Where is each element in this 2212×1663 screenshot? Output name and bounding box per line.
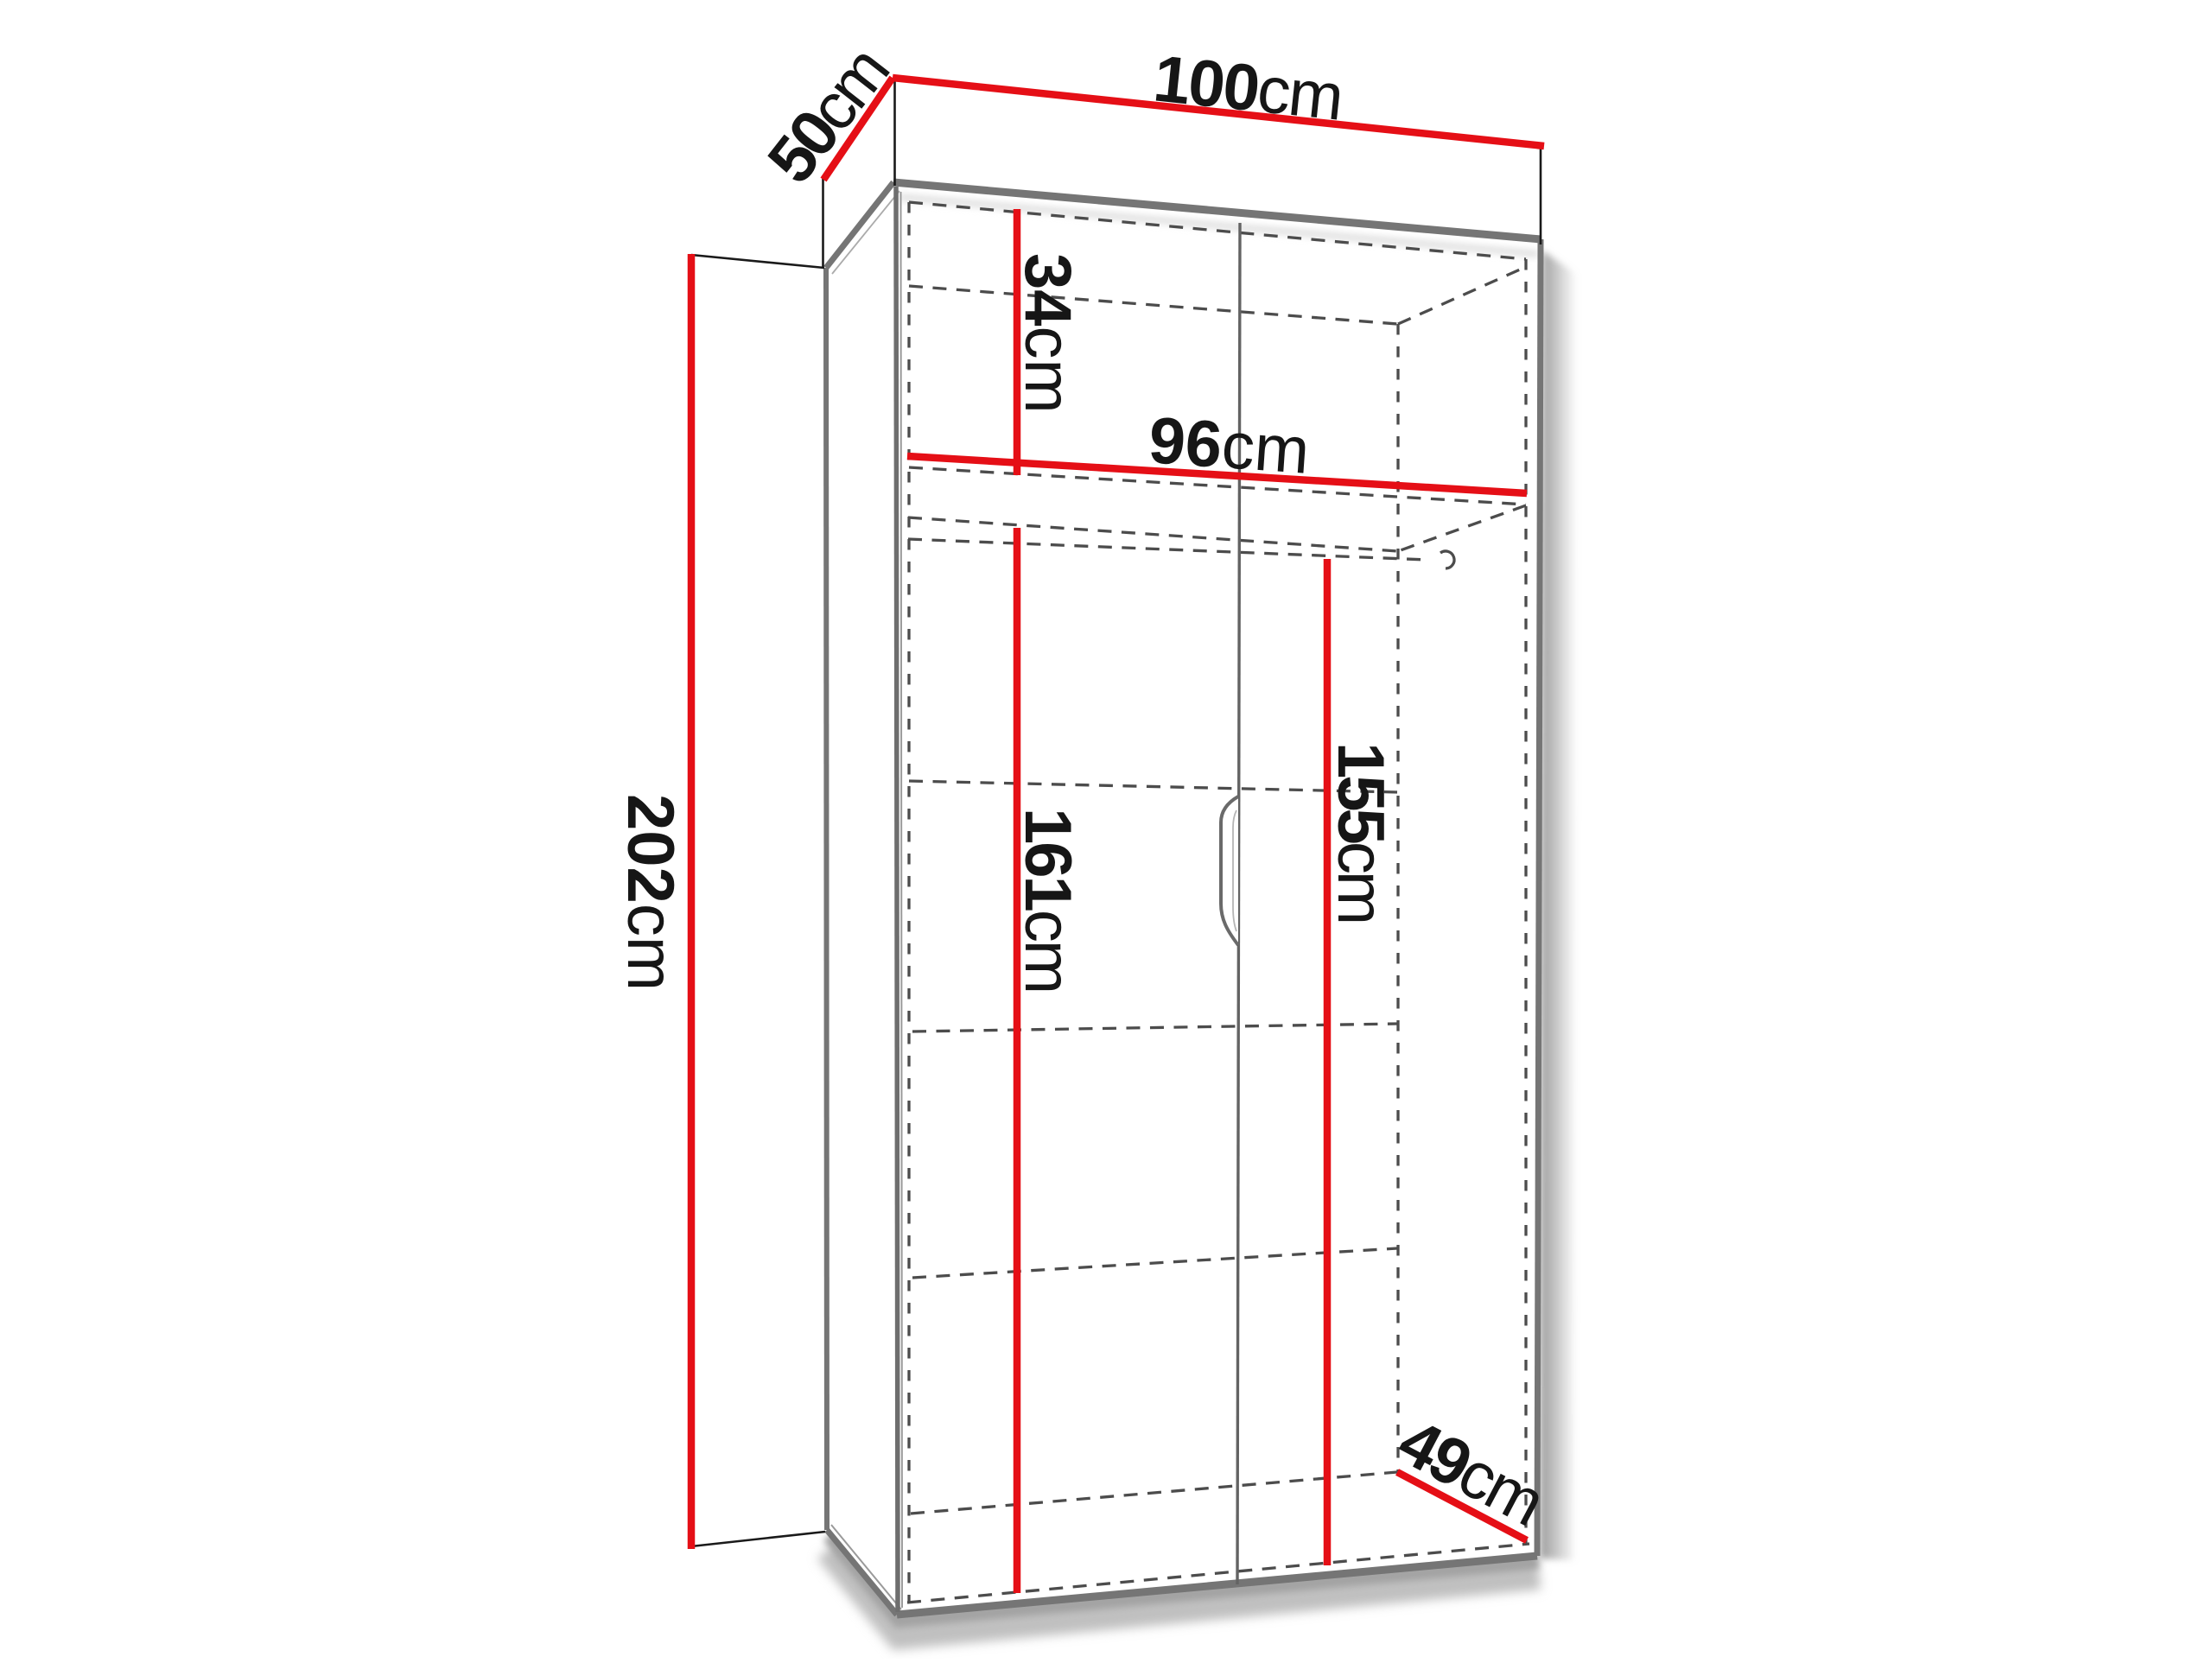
svg-text:96cm: 96cm <box>1147 403 1312 488</box>
svg-text:155cm: 155cm <box>1324 742 1397 922</box>
svg-text:34cm: 34cm <box>1011 253 1084 414</box>
svg-text:202cm: 202cm <box>613 794 687 991</box>
svg-text:161cm: 161cm <box>1011 808 1084 992</box>
